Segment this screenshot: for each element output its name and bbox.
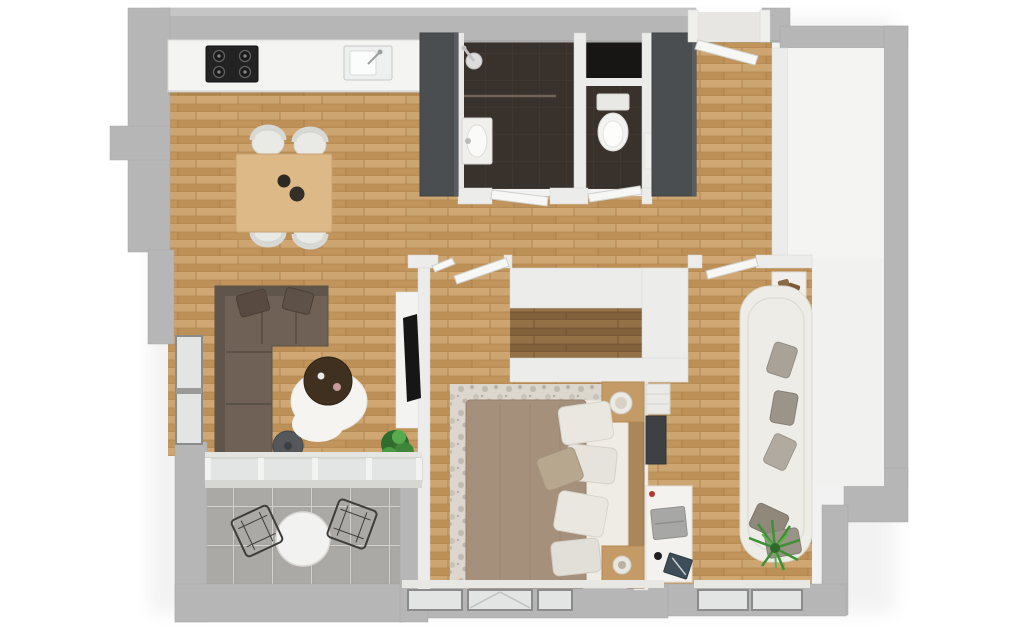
office-window xyxy=(752,590,802,610)
hall-wardrobe-edge xyxy=(692,33,696,196)
floor-entry-hall xyxy=(696,42,772,196)
sink-faucet-base xyxy=(378,50,383,55)
burner-dot xyxy=(217,54,220,57)
wall-top-highlight xyxy=(160,8,696,16)
burner-dot xyxy=(217,70,220,73)
sink-basin xyxy=(350,51,376,75)
office-window xyxy=(698,590,748,610)
wall-left-stub xyxy=(148,250,174,344)
coffee-table-bowl xyxy=(333,383,341,391)
wall-right xyxy=(884,26,908,488)
wall-bath-bottom-c xyxy=(642,188,652,204)
wall-bath-bottom-b xyxy=(550,188,588,204)
cooktop xyxy=(206,46,258,82)
wall-band-right-office xyxy=(812,258,884,486)
bed-pillow xyxy=(550,538,601,577)
plan-root xyxy=(110,8,908,622)
glass-mullion xyxy=(366,458,372,482)
bedroom-window xyxy=(538,590,572,610)
wall-bath-bottom-a xyxy=(458,188,492,204)
entry-jamb xyxy=(760,10,770,42)
closet-wall-bottom xyxy=(510,358,688,382)
bath-sink-faucet xyxy=(465,138,471,144)
floor-corridor xyxy=(420,196,772,268)
wall-balcony-bottom xyxy=(175,584,405,622)
wall-office-top-a xyxy=(688,255,702,268)
sofa-backrest-left xyxy=(215,296,225,458)
balcony-lower-sill xyxy=(205,480,422,488)
kitchen-counter-shadow xyxy=(168,90,420,95)
ottoman-center xyxy=(284,442,292,450)
floor-plan-svg xyxy=(0,0,1024,640)
wall-niche-divider xyxy=(584,78,642,86)
shower-arm-base xyxy=(462,46,467,51)
entry-jamb xyxy=(688,10,698,42)
glass-mullion xyxy=(205,458,211,482)
wall-office-top-b xyxy=(756,255,812,268)
desk-item-red xyxy=(649,491,655,497)
nightstand-decor-inner xyxy=(615,397,627,409)
nightstand-decor-inner xyxy=(618,561,626,569)
living-rug-blob xyxy=(292,406,344,442)
floor-closet-dark xyxy=(510,306,644,360)
wall-bath-mid xyxy=(574,33,586,193)
floorplan-stage xyxy=(0,0,1024,640)
wall-bath-left-face xyxy=(458,33,464,193)
balcony-table xyxy=(276,512,330,566)
office-dark-unit xyxy=(646,416,666,464)
wall-hall-right xyxy=(772,48,788,256)
palm-center xyxy=(770,543,780,553)
burner-dot xyxy=(243,70,246,73)
tall-cabinet xyxy=(420,33,458,196)
table-decor xyxy=(278,175,291,188)
toilet-seat xyxy=(603,121,623,147)
office-shelf-unit xyxy=(646,384,670,414)
tall-cabinet-edge xyxy=(454,33,458,196)
bedroom-window xyxy=(408,590,462,610)
glass-mullion xyxy=(416,458,422,482)
entry-threshold xyxy=(698,12,760,42)
wall-left-notch xyxy=(110,126,170,160)
coffee-table xyxy=(304,357,352,405)
daybed-pillow xyxy=(769,390,798,426)
bedroom-window-sill xyxy=(402,580,664,588)
burner-dot xyxy=(243,54,246,57)
coffee-table-cup xyxy=(318,373,325,380)
bed-pillow xyxy=(558,401,615,446)
dining-table xyxy=(236,154,332,232)
wall-band-right-upper xyxy=(788,48,884,258)
office-window-sill xyxy=(694,580,810,588)
table-decor xyxy=(290,187,305,202)
wall-bedroom-left xyxy=(418,268,430,590)
bedroom-window-tilted xyxy=(468,590,532,610)
shaft-niche xyxy=(584,40,642,80)
desk-item-round xyxy=(654,552,662,560)
living-plant-leaf xyxy=(392,430,406,444)
glass-mullion xyxy=(258,458,264,482)
glass-mullion xyxy=(312,458,318,482)
bed-pillow xyxy=(553,490,609,538)
hall-wardrobe xyxy=(652,33,696,196)
living-west-window-rail xyxy=(176,388,202,394)
toilet-tank xyxy=(597,94,629,110)
